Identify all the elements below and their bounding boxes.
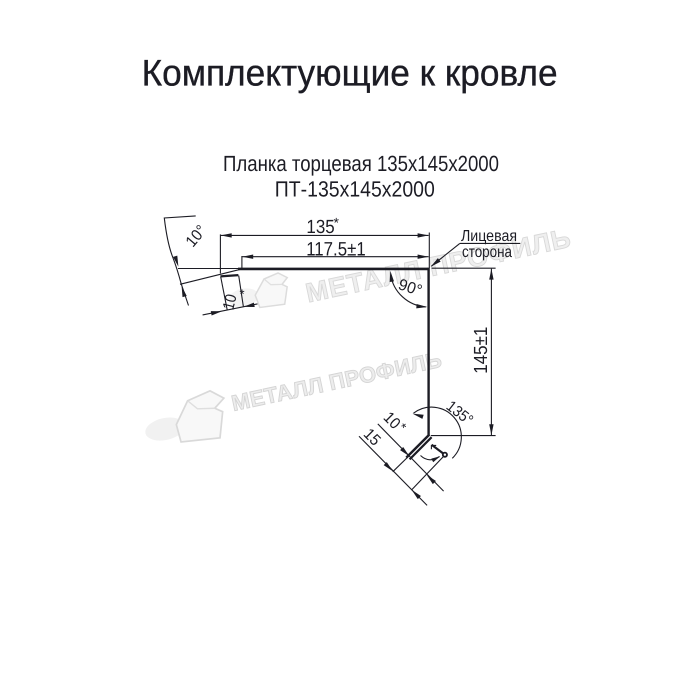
svg-text:*: * <box>240 287 245 302</box>
svg-text:117.5±1: 117.5±1 <box>306 239 366 261</box>
svg-text:Лицевая: Лицевая <box>461 228 517 245</box>
svg-text:Комплектующие к кровле: Комплектующие к кровле <box>142 53 558 94</box>
svg-text:135: 135 <box>306 217 334 238</box>
svg-text:сторона: сторона <box>462 244 512 261</box>
svg-text:Планка торцевая 135х145х2000: Планка торцевая 135х145х2000 <box>223 151 499 176</box>
svg-text:ПТ-135х145х2000: ПТ-135х145х2000 <box>275 177 435 202</box>
svg-text:145±1: 145±1 <box>471 327 492 374</box>
svg-text:*: * <box>334 215 340 231</box>
